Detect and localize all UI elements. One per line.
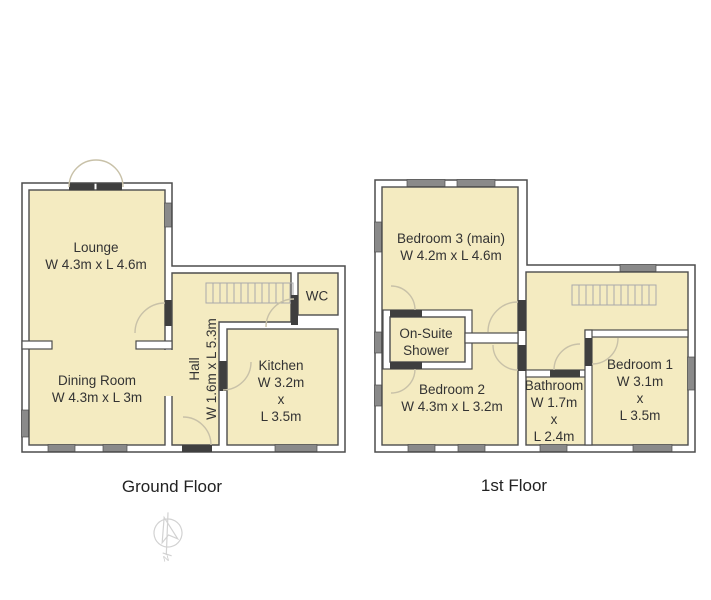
lounge-dining-floor <box>29 190 165 445</box>
room-name: Lounge <box>45 239 147 256</box>
room-dimensions: L 3.5m <box>607 407 673 424</box>
room-name: Bedroom 1 <box>607 356 673 373</box>
room-label-hall: Hall W 1.6m x L 5.3m <box>186 318 220 420</box>
bedroom1-top-wall <box>585 330 688 337</box>
lounge-dining-stub-wall-left <box>22 341 52 349</box>
ground-floor-title: Ground Floor <box>122 477 222 497</box>
room-dimensions: x <box>607 390 673 407</box>
room-dimensions: L 3.5m <box>258 408 305 425</box>
room-dimensions: W 4.2m x L 4.6m <box>397 247 505 264</box>
room-dimensions: W 3.2m <box>258 374 305 391</box>
room-dimensions: W 4.3m x L 4.6m <box>45 256 147 273</box>
lounge-dining-stub-wall-right <box>136 341 172 349</box>
room-label-dining-room: Dining Room W 4.3m x L 3m <box>52 372 142 406</box>
room-dimensions: W 3.1m <box>607 373 673 390</box>
room-name: Kitchen <box>258 357 305 374</box>
floorplan-canvas: N Lounge W 4.3m x L 4.6m Dining Room W 4… <box>0 0 711 600</box>
room-label-bedroom2: Bedroom 2 W 4.3m x L 3.2m <box>401 381 503 415</box>
room-label-wc: WC <box>306 288 329 305</box>
room-name: On-Suite <box>399 325 452 342</box>
room-name: Bedroom 3 (main) <box>397 230 505 247</box>
room-name: Hall <box>186 318 203 420</box>
room-label-bathroom: Bathroom W 1.7m x L 2.4m <box>525 377 584 445</box>
room-dimensions: L 2.4m <box>525 428 584 445</box>
room-label-bedroom1: Bedroom 1 W 3.1m x L 3.5m <box>607 356 673 424</box>
lounge-french-doors <box>69 160 123 191</box>
room-dimensions: W 4.3m x L 3m <box>52 389 142 406</box>
room-name: Bathroom <box>525 377 584 394</box>
room-dimensions: W 4.3m x L 3.2m <box>401 398 503 415</box>
room-name: Dining Room <box>52 372 142 389</box>
room-label-kitchen: Kitchen W 3.2m x L 3.5m <box>258 357 305 425</box>
floorplan-drawing: N <box>0 0 711 600</box>
room-dimensions: x <box>525 411 584 428</box>
room-name: Bedroom 2 <box>401 381 503 398</box>
room-name: Shower <box>399 342 452 359</box>
room-label-onsuite-shower: On-Suite Shower <box>399 325 452 359</box>
room-dimensions: W 1.7m <box>525 394 584 411</box>
dining-hall-opening <box>163 350 174 396</box>
room-label-lounge: Lounge W 4.3m x L 4.6m <box>45 239 147 273</box>
corridor-wall <box>465 333 518 343</box>
room-label-bedroom3: Bedroom 3 (main) W 4.2m x L 4.6m <box>397 230 505 264</box>
room-name: WC <box>306 288 329 305</box>
first-floor-title: 1st Floor <box>481 476 547 496</box>
room-dimensions: x <box>258 391 305 408</box>
room-dimensions: W 1.6m x L 5.3m <box>203 318 220 420</box>
compass-icon: N <box>150 510 189 564</box>
